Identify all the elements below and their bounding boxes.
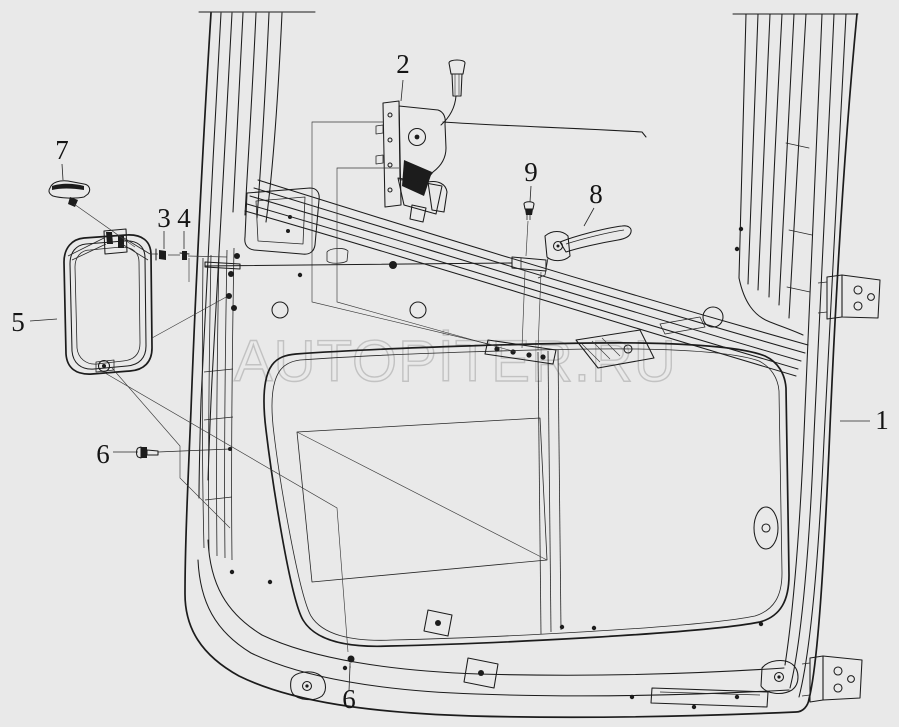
fastener-3 [159, 250, 166, 260]
callout-5: 5 [11, 307, 25, 337]
callout-6-lower: 6 [342, 684, 356, 714]
fastener-4 [182, 251, 187, 260]
callout-3: 3 [157, 203, 171, 233]
callout-4: 4 [177, 203, 191, 233]
door-parts-diagram: AUTOPİTER.RU [0, 0, 899, 727]
callout-1: 1 [875, 405, 889, 435]
callout-7: 7 [55, 135, 69, 165]
watermark-text: AUTOPİTER.RU [234, 329, 677, 394]
callout-8: 8 [589, 179, 603, 209]
callout-9: 9 [524, 157, 538, 187]
parts-diagram-page: AUTOPİTER.RU [0, 0, 899, 727]
callout-6-upper: 6 [96, 439, 110, 469]
callout-2: 2 [396, 49, 410, 79]
